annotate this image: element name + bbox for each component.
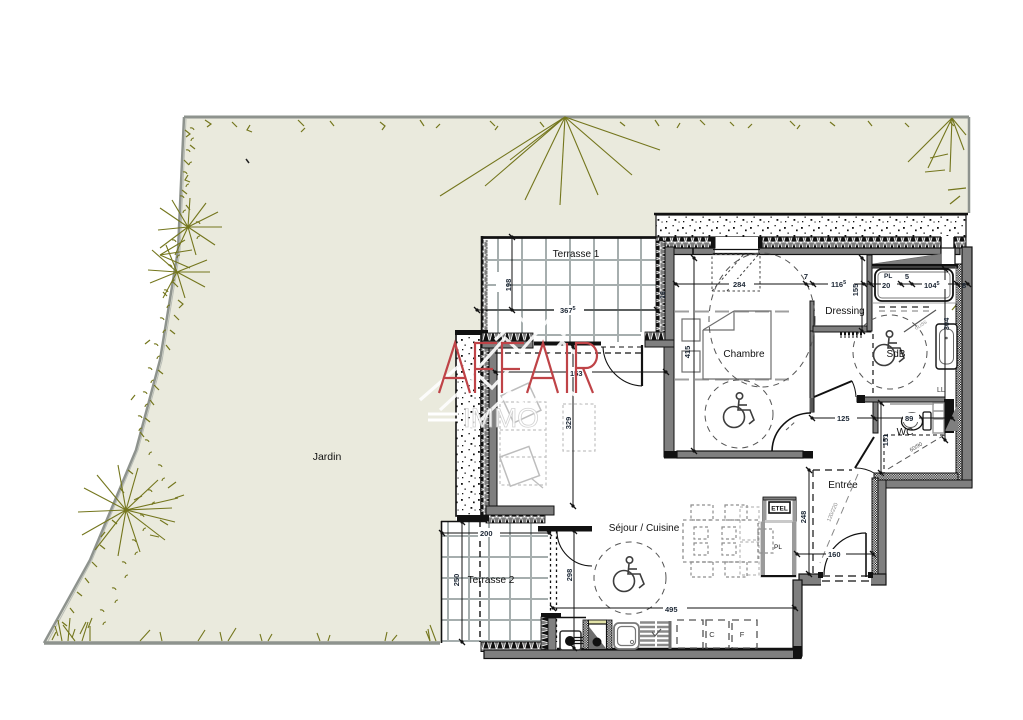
svg-text:151: 151 [881,434,890,447]
svg-text:PL: PL [884,273,892,280]
svg-text:329: 329 [564,417,573,430]
svg-text:WC: WC [897,427,914,438]
svg-text:ETEL: ETEL [771,506,788,513]
svg-text:155: 155 [851,284,860,297]
svg-text:Terrasse 1: Terrasse 1 [553,249,600,260]
svg-text:SdB: SdB [887,349,906,360]
svg-text:200: 200 [480,529,493,538]
svg-text:415: 415 [683,346,692,359]
svg-text:304: 304 [942,317,951,330]
svg-text:Terrasse 2: Terrasse 2 [468,575,515,586]
svg-text:F: F [740,630,745,639]
svg-text:250: 250 [452,574,461,587]
svg-text:IMMO: IMMO [463,403,539,433]
svg-text:284: 284 [733,280,746,289]
svg-text:20: 20 [882,281,890,290]
svg-text:7: 7 [804,272,808,281]
svg-text:298: 298 [565,569,574,582]
svg-text:160: 160 [828,550,841,559]
svg-text:Dressing: Dressing [825,306,864,317]
svg-text:125: 125 [837,414,850,423]
svg-text:198: 198 [504,279,513,292]
svg-text:Entrée: Entrée [828,480,858,491]
svg-text:248: 248 [799,511,808,524]
svg-text:PL: PL [774,544,782,551]
svg-text:495: 495 [665,605,678,614]
svg-text:89: 89 [905,414,913,423]
svg-text:C: C [709,630,715,639]
svg-text:Jardin: Jardin [313,451,342,463]
svg-text:16: 16 [660,291,667,299]
svg-text:Chambre: Chambre [723,349,765,360]
svg-text:Séjour / Cuisine: Séjour / Cuisine [609,523,680,534]
svg-text:8: 8 [962,281,966,290]
svg-text:5: 5 [905,272,909,281]
svg-text:LL: LL [937,387,945,394]
